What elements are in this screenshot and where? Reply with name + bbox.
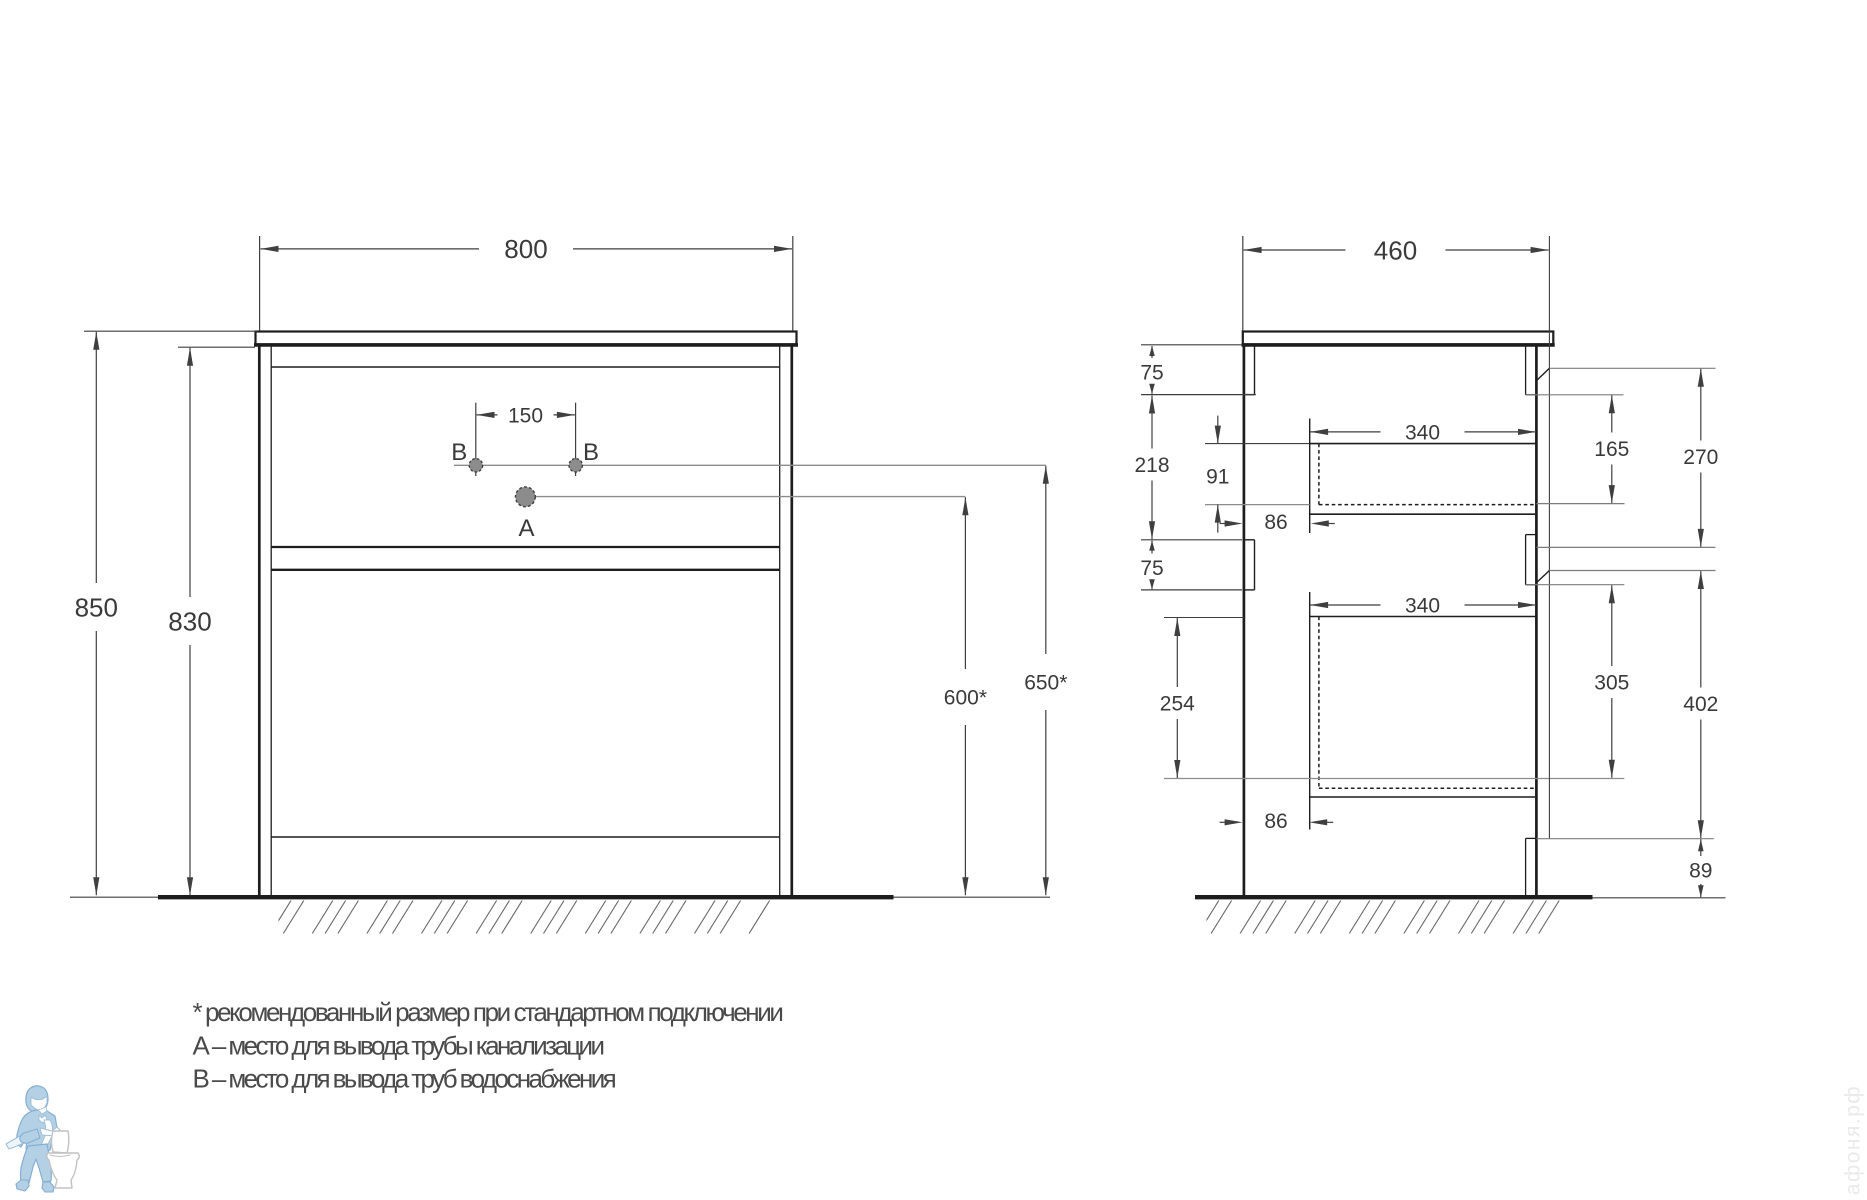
svg-text:165: 165	[1594, 438, 1629, 461]
svg-text:800: 800	[504, 234, 547, 264]
svg-text:270: 270	[1683, 446, 1718, 469]
svg-text:* рекомендованный размер при с: * рекомендованный размер при стандартном…	[193, 997, 783, 1027]
svg-text:75: 75	[1140, 362, 1163, 385]
svg-text:340: 340	[1405, 595, 1440, 618]
svg-text:А – место для вывода трубы кан: А – место для вывода трубы канализации	[193, 1031, 604, 1061]
svg-text:91: 91	[1206, 466, 1229, 489]
svg-text:600*: 600*	[944, 687, 987, 710]
svg-text:340: 340	[1405, 421, 1440, 444]
svg-text:850: 850	[75, 592, 118, 622]
svg-text:В – место для вывода труб водо: В – место для вывода труб водоснабжения	[193, 1064, 616, 1094]
svg-text:402: 402	[1683, 693, 1718, 716]
svg-text:86: 86	[1264, 810, 1287, 833]
svg-text:афоня.рф: афоня.рф	[1842, 1085, 1865, 1195]
svg-text:89: 89	[1689, 860, 1712, 883]
svg-text:830: 830	[168, 606, 211, 636]
svg-text:650*: 650*	[1024, 672, 1067, 695]
svg-text:B: B	[451, 439, 467, 466]
svg-text:150: 150	[508, 404, 543, 427]
svg-text:B: B	[583, 439, 599, 466]
svg-text:305: 305	[1594, 672, 1629, 695]
svg-text:218: 218	[1134, 454, 1169, 477]
svg-text:A: A	[518, 515, 534, 542]
svg-text:75: 75	[1140, 557, 1163, 580]
svg-text:254: 254	[1160, 693, 1195, 716]
svg-text:460: 460	[1374, 235, 1417, 265]
svg-text:86: 86	[1264, 511, 1287, 534]
